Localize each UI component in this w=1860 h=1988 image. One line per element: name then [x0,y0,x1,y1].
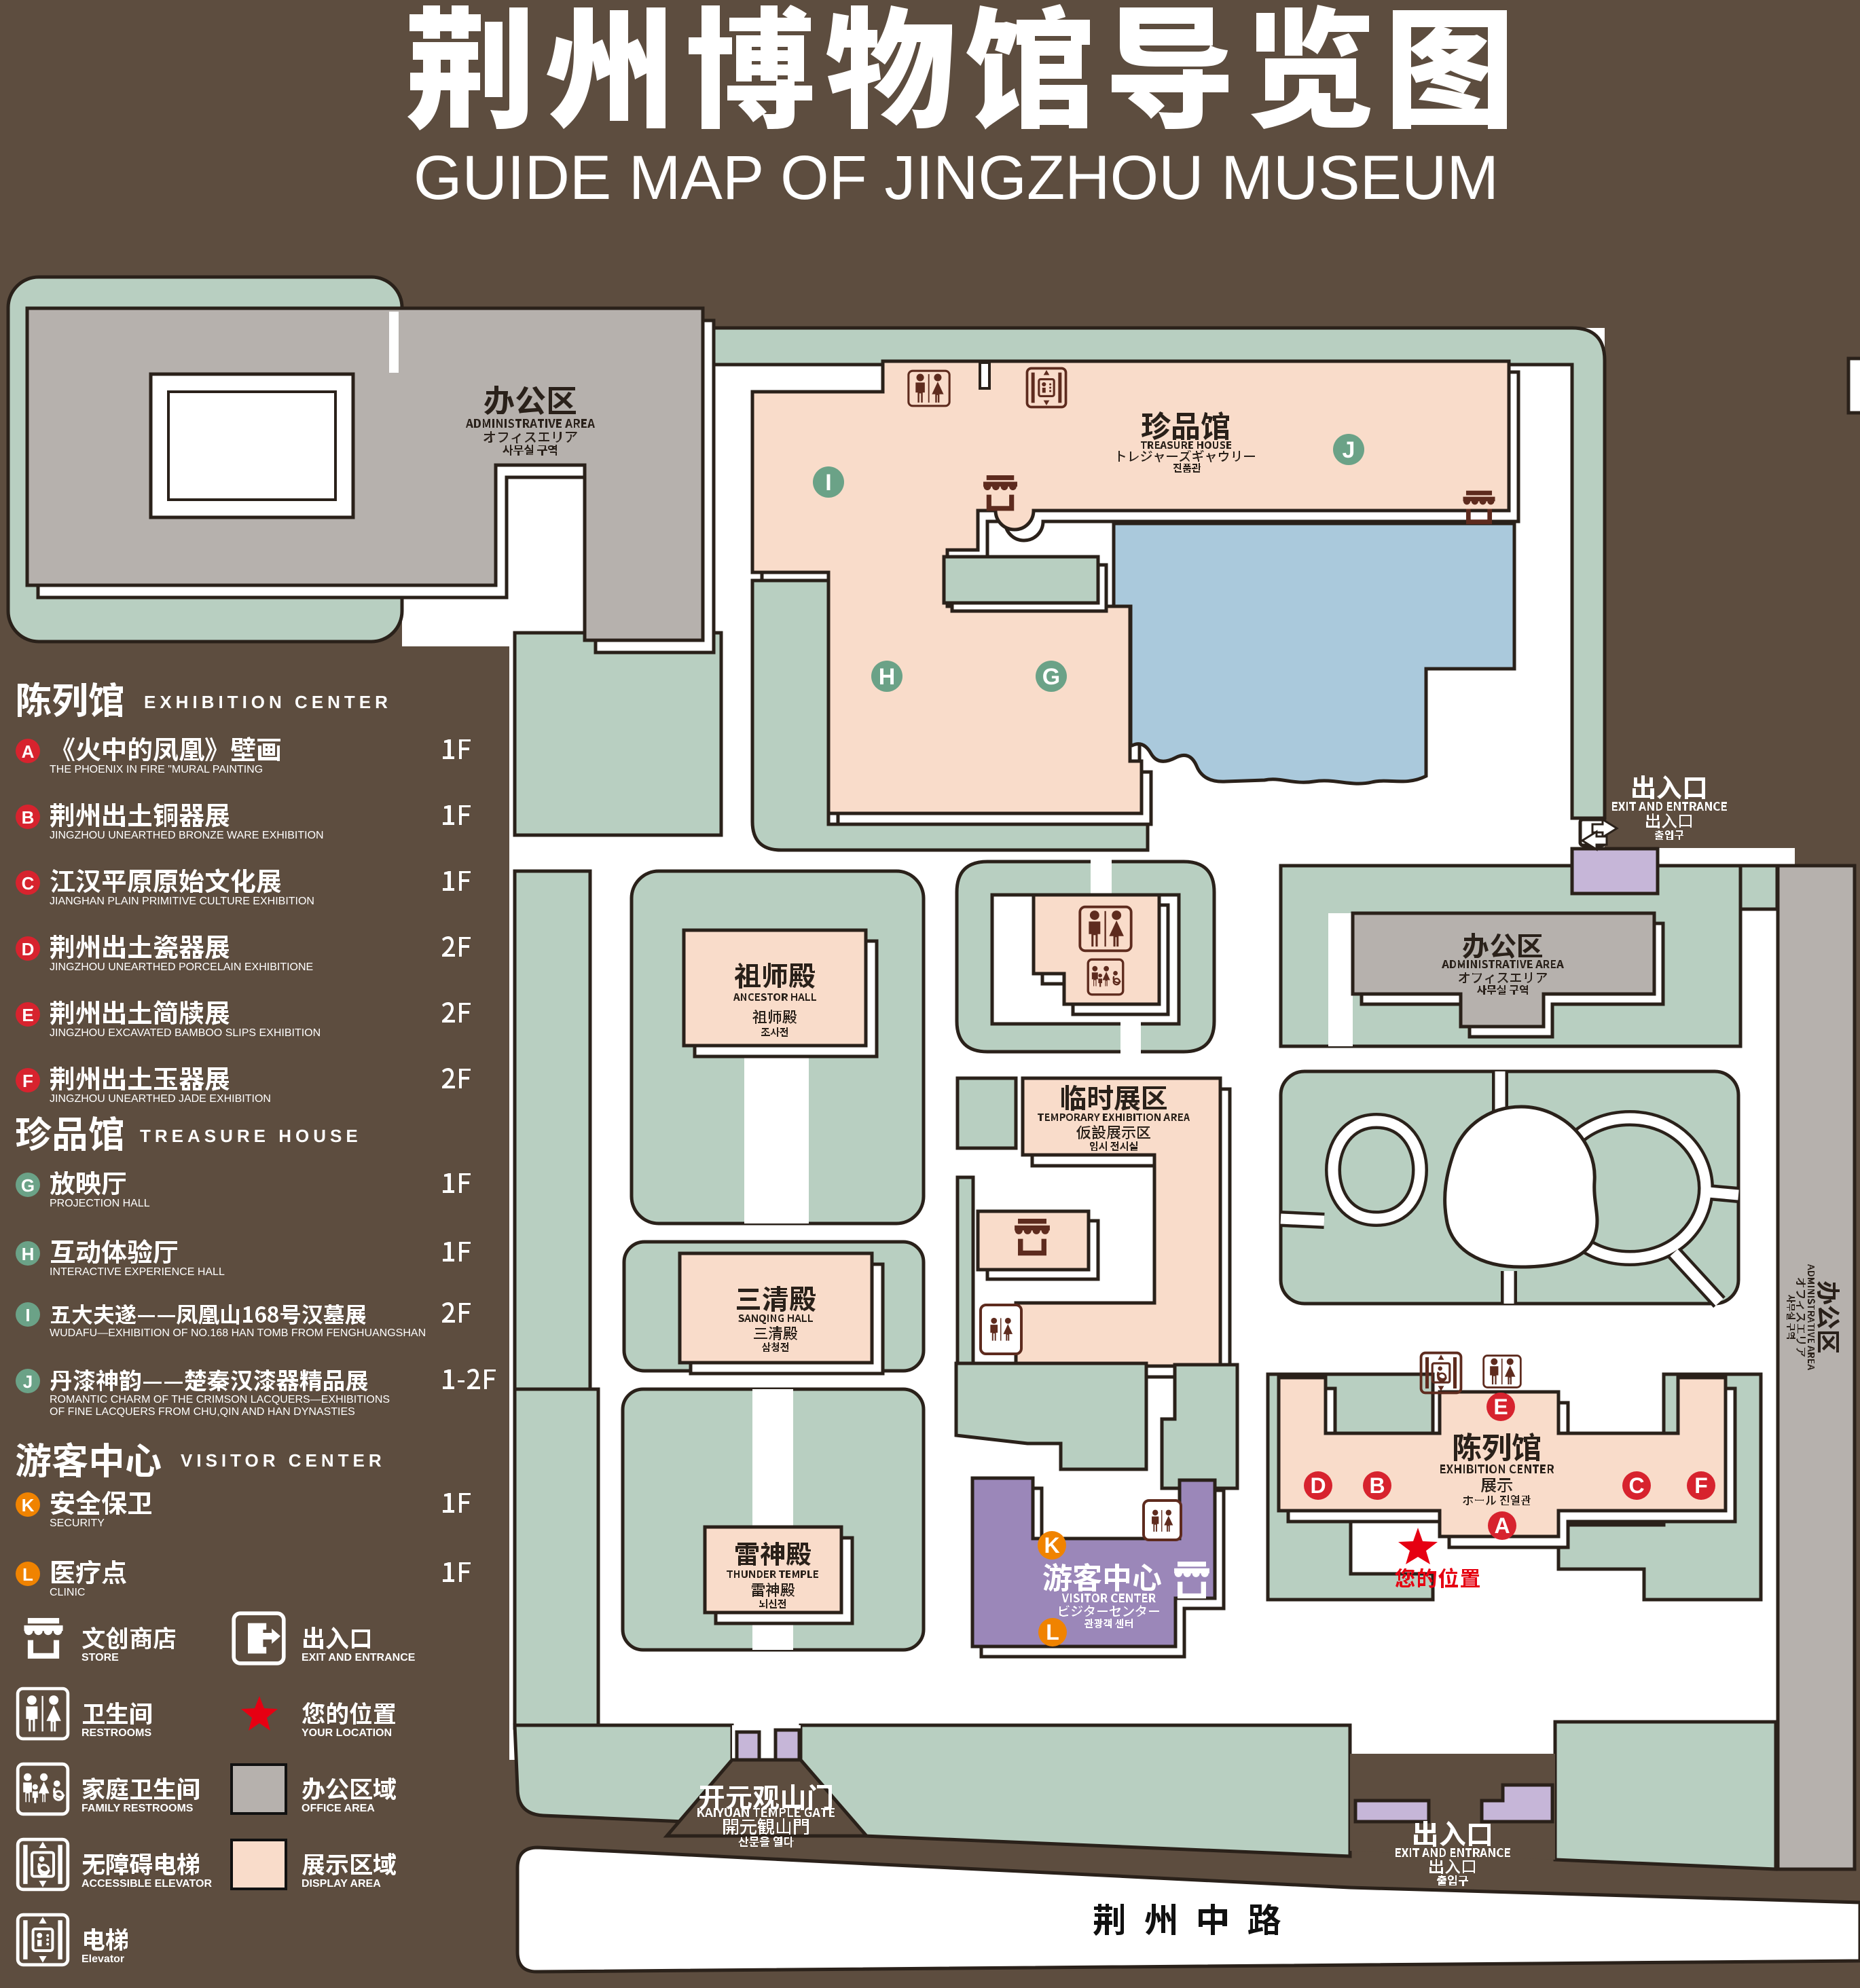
svg-text:INTERACTIVE EXPERIENCE HALL: INTERACTIVE EXPERIENCE HALL [50,1266,225,1278]
svg-text:SECURITY: SECURITY [50,1517,105,1529]
svg-text:H: H [22,1244,35,1264]
svg-text:B: B [22,807,35,828]
svg-text:JINGZHOU UNEARTHED PORCELAIN E: JINGZHOU UNEARTHED PORCELAIN EXHIBITIONE [50,961,313,973]
svg-text:TREASURE HOUSE: TREASURE HOUSE [140,1126,362,1146]
svg-text:Elevator: Elevator [81,1953,124,1965]
svg-text:A: A [1494,1513,1510,1538]
svg-text:STORE: STORE [81,1652,119,1663]
svg-text:EXHIBITION CENTER: EXHIBITION CENTER [144,692,392,712]
svg-text:I: I [25,1305,30,1325]
svg-text:YOUR LOCATION: YOUR LOCATION [302,1727,392,1739]
svg-text:C: C [1628,1473,1644,1498]
svg-text:DISPLAY AREA: DISPLAY AREA [302,1878,381,1890]
svg-text:OFFICE AREA: OFFICE AREA [302,1803,375,1814]
svg-text:ACCESSIBLE ELEVATOR: ACCESSIBLE ELEVATOR [81,1878,212,1890]
svg-text:D: D [1310,1473,1326,1498]
svg-text:G: G [21,1175,35,1196]
svg-text:J: J [1343,437,1355,463]
svg-text:FAMILY RESTROOMS: FAMILY RESTROOMS [81,1803,194,1814]
svg-text:OF FINE LACQUERS FROM CHU,QIN: OF FINE LACQUERS FROM CHU,QIN AND HAN DY… [50,1406,355,1418]
svg-text:GUIDE MAP OF JINGZHOU MUSEUM: GUIDE MAP OF JINGZHOU MUSEUM [414,143,1499,213]
svg-text:C: C [22,873,35,894]
svg-text:D: D [22,939,35,959]
svg-text:VISITOR CENTER: VISITOR CENTER [181,1450,386,1471]
svg-text:JIANGHAN PLAIN PRIMITIVE CULTU: JIANGHAN PLAIN PRIMITIVE CULTURE EXHIBIT… [50,896,314,907]
svg-text:K: K [22,1495,35,1515]
svg-text:H: H [879,664,896,690]
svg-text:EXIT AND ENTRANCE: EXIT AND ENTRANCE [302,1652,416,1663]
svg-text:J: J [23,1372,33,1392]
svg-text:E: E [22,1005,33,1025]
svg-text:L: L [22,1564,33,1585]
svg-text:A: A [22,741,35,762]
svg-text:PROJECTION HALL: PROJECTION HALL [50,1198,150,1209]
svg-text:K: K [1044,1533,1059,1558]
svg-text:JINGZHOU UNEARTHED BRONZE WARE: JINGZHOU UNEARTHED BRONZE WARE EXHIBITIO… [50,830,324,841]
svg-text:B: B [1369,1473,1385,1498]
svg-text:WUDAFU—EXHIBITION OF NO.168 HA: WUDAFU—EXHIBITION OF NO.168 HAN TOMB FRO… [50,1327,426,1339]
svg-text:ROMANTIC CHARM OF THE CRIMSON: ROMANTIC CHARM OF THE CRIMSON LACQUERS—E… [50,1394,390,1405]
svg-text:L: L [1046,1620,1059,1644]
svg-text:JINGZHOU UNEARTHED JADE EXHIBI: JINGZHOU UNEARTHED JADE EXHIBITION [50,1093,271,1105]
svg-text:F: F [1694,1473,1708,1498]
svg-text:CLINIC: CLINIC [50,1587,85,1598]
svg-text:G: G [1042,664,1060,690]
svg-text:I: I [825,470,831,496]
svg-text:JINGZHOU EXCAVATED BAMBOO SLIP: JINGZHOU EXCAVATED BAMBOO SLIPS EXHIBITI… [50,1027,321,1039]
svg-text:E: E [1493,1395,1508,1419]
svg-text:THE PHOENIX IN FIRE "MURAL PAI: THE PHOENIX IN FIRE "MURAL PAINTING [50,764,263,775]
svg-text:RESTROOMS: RESTROOMS [81,1727,151,1739]
svg-text:F: F [22,1071,33,1091]
